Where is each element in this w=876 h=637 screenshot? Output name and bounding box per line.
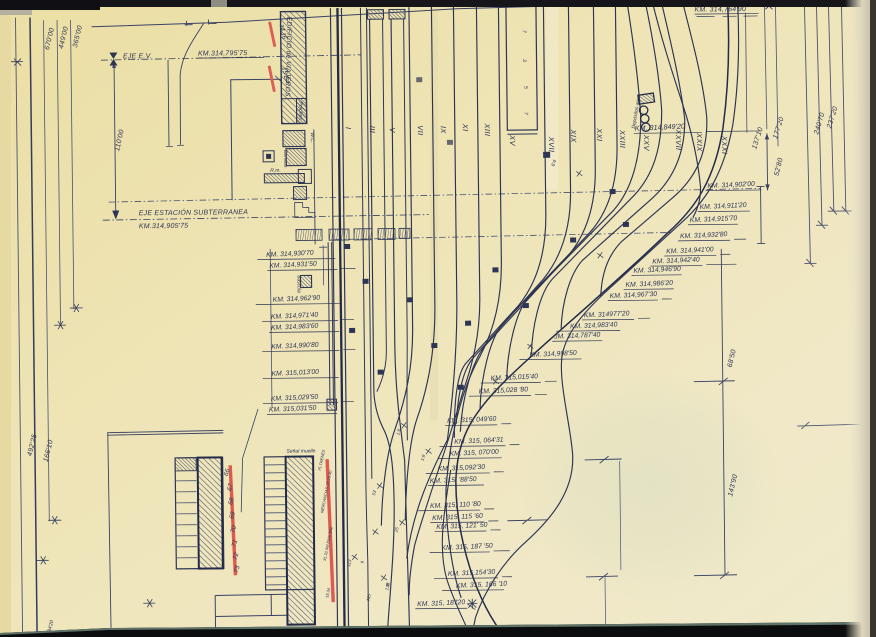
svg-text:VII: VII bbox=[416, 125, 425, 135]
svg-text:XXIII: XXIII bbox=[618, 129, 627, 148]
svg-text:R.m.: R.m. bbox=[270, 168, 281, 174]
svg-text:Porches: Porches bbox=[297, 101, 303, 120]
svg-text:V: V bbox=[388, 127, 397, 133]
svg-text:5: 5 bbox=[522, 86, 528, 89]
svg-text:XV: XV bbox=[508, 134, 517, 147]
svg-text:XXVII: XXVII bbox=[674, 128, 683, 150]
svg-text:KM. 314,764'90: KM. 314,764'90 bbox=[694, 6, 746, 14]
svg-text:XXIX: XXIX bbox=[695, 132, 704, 152]
svg-text:IX: IX bbox=[439, 126, 448, 135]
svg-text:W.C.: W.C. bbox=[309, 132, 315, 143]
svg-text:III: III bbox=[368, 126, 377, 134]
svg-text:Señal muelle: Señal muelle bbox=[286, 448, 315, 454]
svg-text:XI: XI bbox=[461, 123, 470, 132]
svg-text:XXV: XXV bbox=[642, 134, 651, 152]
svg-text:7: 7 bbox=[521, 30, 527, 33]
svg-text:KM.314,905'75: KM.314,905'75 bbox=[139, 223, 189, 231]
svg-text:XIII: XIII bbox=[483, 122, 492, 136]
svg-text:7: 7 bbox=[523, 112, 529, 115]
svg-text:XIX: XIX bbox=[569, 128, 578, 143]
svg-text:EJE E.V.: EJE E.V. bbox=[123, 53, 152, 60]
svg-text:XXXI: XXXI bbox=[720, 135, 729, 155]
svg-text:báscula: báscula bbox=[295, 275, 301, 293]
svg-text:XVII: XVII bbox=[547, 136, 556, 153]
svg-text:XXI: XXI bbox=[595, 127, 604, 141]
svg-text:KM.314,795'75: KM.314,795'75 bbox=[198, 50, 248, 58]
svg-text:Correos: Correos bbox=[282, 150, 288, 168]
svg-text:I: I bbox=[344, 127, 353, 130]
svg-text:3: 3 bbox=[521, 59, 527, 62]
